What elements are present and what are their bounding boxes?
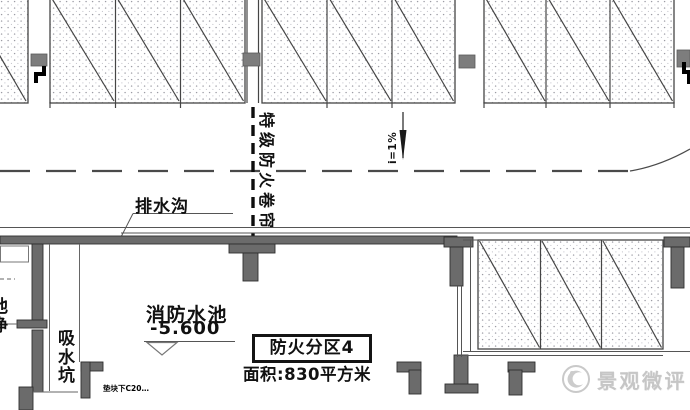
cad-floor-plan: 特级防火卷帘 i=1% 排水沟 消防水池 -5.600 吸水坑 池净 防火分区4… (0, 0, 690, 410)
suction-pit-label: 吸水坑 (57, 330, 76, 386)
slope-arrow (400, 112, 407, 160)
fire-zone-name: 防火分区4 (270, 338, 355, 358)
watermark: 景观微评 (561, 364, 687, 394)
watermark-text: 景观微评 (597, 365, 687, 394)
pool-elevation-value: -5.600 (150, 318, 220, 339)
elevation-marker (144, 342, 235, 356)
fire-shutter-label: 特级防火卷帘 (262, 112, 280, 244)
fire-zone-box: 防火分区4 (252, 334, 372, 363)
parking-stall-band (0, 0, 674, 103)
slope-label: i=1% (387, 112, 400, 164)
watermark-logo-icon (561, 364, 591, 394)
lower-stall-block (458, 240, 690, 357)
lane-curve (630, 149, 690, 171)
truncated-bottom-note: 垫块下C20… (103, 383, 149, 394)
fire-zone-area: 面积:830平方米 (243, 361, 371, 385)
clipped-left-label: 池净 (0, 298, 9, 335)
drain-ditch-label: 排水沟 (135, 192, 189, 217)
drain-ditch-lines (0, 214, 690, 238)
